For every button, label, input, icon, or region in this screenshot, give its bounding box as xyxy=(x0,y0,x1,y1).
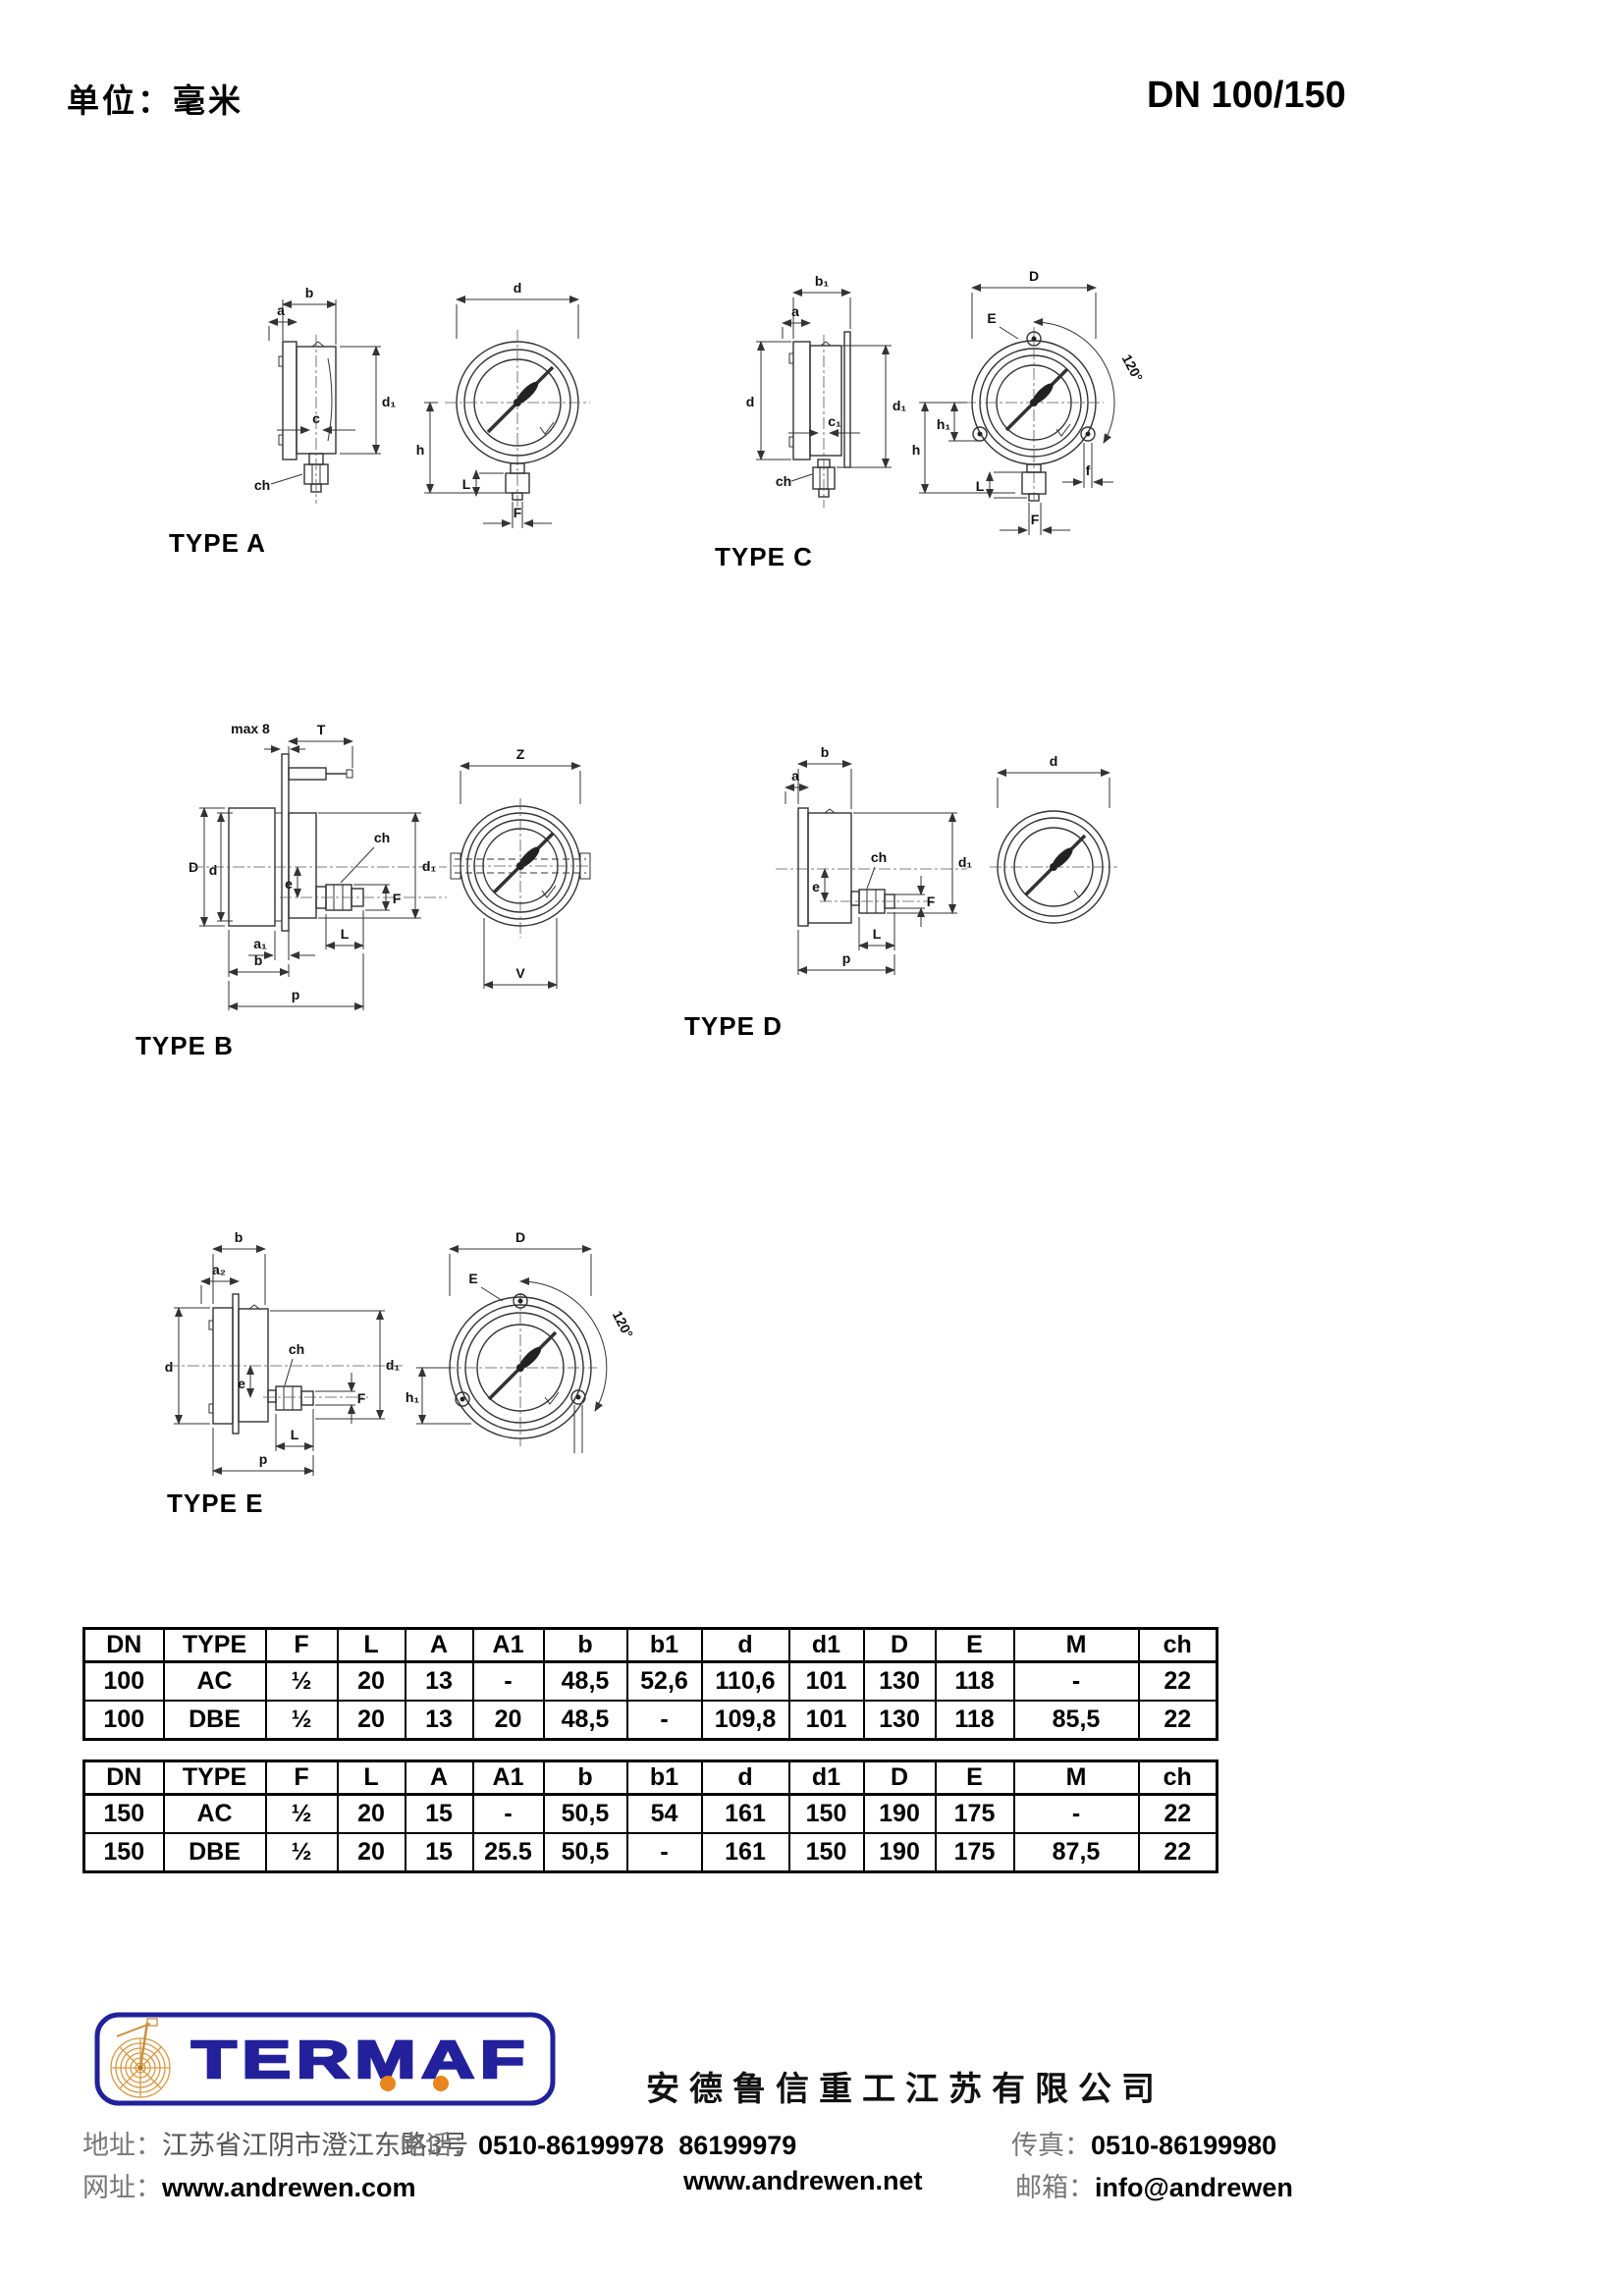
dim-label: D xyxy=(1029,268,1039,284)
table-header-cell: A1 xyxy=(473,1761,544,1795)
table-header-cell: d xyxy=(702,1629,789,1662)
email-value: info@andrewen xyxy=(1095,2173,1293,2202)
table-cell: 118 xyxy=(936,1662,1014,1702)
table-row: 150AC½2015-50,554161150190175-22 xyxy=(84,1795,1218,1834)
website-1: www.andrewen.com xyxy=(162,2173,416,2202)
dim-label: F xyxy=(393,891,402,906)
table-header-cell: DN xyxy=(84,1761,164,1795)
table-header-cell: d1 xyxy=(789,1761,864,1795)
dim-label: b xyxy=(235,1229,244,1245)
table-header-cell: d1 xyxy=(789,1629,864,1662)
dim-label: h₁ xyxy=(406,1389,420,1405)
table-cell: 101 xyxy=(789,1701,864,1740)
table-cell: - xyxy=(473,1662,544,1702)
dim-label: d xyxy=(165,1359,174,1375)
table-header-row: DNTYPEFLAA1bb1dd1DEMch xyxy=(84,1629,1218,1662)
table-cell: AC xyxy=(164,1795,266,1834)
dim-label: d xyxy=(209,862,218,878)
contact-line-2: 网址：www.andrewen.com www.andrewen.net 邮箱：… xyxy=(82,2166,1595,2208)
table-header-cell: M xyxy=(1014,1629,1139,1662)
dim-label: L xyxy=(976,478,985,494)
table-cell: 100 xyxy=(84,1701,164,1740)
dim-label: d₁ xyxy=(382,394,397,409)
table-cell: DBE xyxy=(164,1833,266,1872)
table-header-cell: D xyxy=(864,1761,936,1795)
dim-label: a xyxy=(791,768,799,784)
dim-label: b xyxy=(821,744,830,760)
table-cell: 20 xyxy=(338,1662,406,1702)
dim-label: ch xyxy=(374,830,390,845)
table-header-cell: DN xyxy=(84,1629,164,1662)
table-cell: - xyxy=(627,1701,702,1740)
dim-label: d₁ xyxy=(958,854,973,870)
table-header-cell: F xyxy=(266,1761,338,1795)
dim-label: E xyxy=(468,1271,477,1286)
table-cell: 22 xyxy=(1139,1833,1218,1872)
table-header-cell: b xyxy=(544,1629,627,1662)
dn-size-title: DN 100/150 xyxy=(1147,75,1346,117)
table-cell: 175 xyxy=(936,1795,1014,1834)
dim-label: f xyxy=(1086,462,1091,478)
type-d-caption: TYPE D xyxy=(684,1011,783,1042)
dim-label: b xyxy=(305,285,314,300)
table-cell: ½ xyxy=(266,1701,338,1740)
dim-label: b xyxy=(254,952,263,968)
table-cell: 13 xyxy=(406,1701,473,1740)
dim-label: d xyxy=(746,394,755,409)
table-cell: ½ xyxy=(266,1662,338,1702)
dim-label: F xyxy=(357,1390,366,1406)
table-cell: 100 xyxy=(84,1662,164,1702)
table-cell: 50,5 xyxy=(544,1795,627,1834)
table-cell: 22 xyxy=(1139,1701,1218,1740)
table-header-cell: E xyxy=(936,1761,1014,1795)
table-header-cell: ch xyxy=(1139,1761,1218,1795)
table-cell: 175 xyxy=(936,1833,1014,1872)
dim-label: max 8 xyxy=(231,721,270,736)
type-a-caption: TYPE A xyxy=(169,528,266,559)
table-cell: 22 xyxy=(1139,1795,1218,1834)
dim-label: ch xyxy=(289,1341,304,1357)
table-cell: 22 xyxy=(1139,1662,1218,1702)
table-header-cell: A1 xyxy=(473,1629,544,1662)
termaf-logo: TERMAF xyxy=(93,2011,559,2109)
type-e-drawing: b a₂ d ch e F d₁ L p D xyxy=(128,1213,677,1605)
table-cell: 15 xyxy=(406,1795,473,1834)
table-header-cell: F xyxy=(266,1629,338,1662)
table-header-cell: L xyxy=(338,1761,406,1795)
table-row: 100AC½2013-48,552,6110,6101130118-22 xyxy=(84,1662,1218,1702)
dim-label: d xyxy=(514,280,522,296)
type-c-caption: TYPE C xyxy=(715,542,813,572)
dim-label: e xyxy=(238,1376,245,1391)
unit-label: 单位：毫米 xyxy=(67,75,244,122)
dim-label: a xyxy=(791,303,799,319)
logo-wordmark: TERMAF xyxy=(191,2030,530,2089)
table-cell: 20 xyxy=(473,1701,544,1740)
dim-label: b₁ xyxy=(815,273,830,289)
dim-label: L xyxy=(291,1427,299,1442)
datasheet-page: 单位：毫米 DN 100/150 b a c d₁ ch xyxy=(0,0,1624,2274)
table-cell: 20 xyxy=(338,1795,406,1834)
table-cell: AC xyxy=(164,1662,266,1702)
type-b-caption: TYPE B xyxy=(135,1031,234,1061)
table-cell: - xyxy=(1014,1795,1139,1834)
table-cell: 150 xyxy=(84,1795,164,1834)
dim-label: V xyxy=(515,965,525,981)
table-header-cell: E xyxy=(936,1629,1014,1662)
table-cell: 190 xyxy=(864,1795,936,1834)
dim-label: ch xyxy=(254,477,270,493)
dim-label: d₁ xyxy=(386,1357,401,1373)
table-header-cell: ch xyxy=(1139,1629,1218,1662)
dim-label: e xyxy=(285,876,293,892)
email-label: 邮箱： xyxy=(1015,2173,1095,2202)
table-cell: 87,5 xyxy=(1014,1833,1139,1872)
website-2: www.andrewen.net xyxy=(683,2166,923,2195)
dim-label: F xyxy=(514,505,522,520)
dim-label: 120° xyxy=(1119,352,1147,384)
dim-label: a xyxy=(277,302,285,318)
fax-label: 传真： xyxy=(1011,2131,1091,2160)
table-cell: 85,5 xyxy=(1014,1701,1139,1740)
table-cell: 109,8 xyxy=(702,1701,789,1740)
dim-label: ch xyxy=(871,849,887,865)
dim-label: c₁ xyxy=(828,413,841,429)
table-header-cell: A xyxy=(406,1629,473,1662)
dim-label: ch xyxy=(776,473,791,489)
table-header-cell: A xyxy=(406,1761,473,1795)
table-cell: 54 xyxy=(627,1795,702,1834)
dimension-table-dn150: DNTYPEFLAA1bb1dd1DEMch150AC½2015-50,5541… xyxy=(82,1760,1218,1873)
dim-label: p xyxy=(842,950,851,966)
table-cell: 150 xyxy=(84,1833,164,1872)
dim-label: L xyxy=(341,926,350,942)
logo-orange-dot xyxy=(380,2076,396,2091)
fax-value: 0510-86199980 xyxy=(1091,2131,1276,2160)
dim-label: L xyxy=(462,476,471,492)
table-header-cell: b1 xyxy=(627,1629,702,1662)
type-a-drawing: b a c d₁ ch d h xyxy=(167,231,658,565)
table-cell: 48,5 xyxy=(544,1662,627,1702)
table-cell: 101 xyxy=(789,1662,864,1702)
table-cell: 150 xyxy=(789,1833,864,1872)
table-cell: 161 xyxy=(702,1795,789,1834)
table-header-cell: M xyxy=(1014,1761,1139,1795)
table-cell: 110,6 xyxy=(702,1662,789,1702)
type-d-drawing: b a ch e F d₁ L p d xyxy=(638,712,1149,1006)
table-header-cell: D xyxy=(864,1629,936,1662)
table-header-cell: L xyxy=(338,1629,406,1662)
type-e-caption: TYPE E xyxy=(167,1489,263,1519)
dim-label: p xyxy=(292,987,300,1002)
table-cell: 190 xyxy=(864,1833,936,1872)
table-cell: 15 xyxy=(406,1833,473,1872)
table-cell: 52,6 xyxy=(627,1662,702,1702)
dim-label: F xyxy=(1031,512,1040,527)
dim-label: d₁ xyxy=(422,858,437,874)
table-cell: 130 xyxy=(864,1701,936,1740)
logo-orange-dot xyxy=(433,2076,449,2091)
dim-label: d xyxy=(1050,753,1058,769)
table-cell: 48,5 xyxy=(544,1701,627,1740)
table-cell: 13 xyxy=(406,1662,473,1702)
dim-label: T xyxy=(317,722,326,737)
phone-label: 电话： xyxy=(399,2131,478,2160)
dim-label: F xyxy=(927,893,936,909)
table-cell: ½ xyxy=(266,1833,338,1872)
dim-label: a₁ xyxy=(253,936,267,951)
table-header-row: DNTYPEFLAA1bb1dd1DEMch xyxy=(84,1761,1218,1795)
table-cell: 130 xyxy=(864,1662,936,1702)
dim-label: d₁ xyxy=(893,398,907,413)
dim-label: D xyxy=(515,1229,525,1245)
contact-block: 地址：江苏省江阴市澄江东路3号 电话：0510-86199978 8619997… xyxy=(82,2124,1595,2208)
address-label: 地址： xyxy=(82,2131,162,2160)
table-cell: 50,5 xyxy=(544,1833,627,1872)
table-header-cell: b xyxy=(544,1761,627,1795)
dim-label: e xyxy=(812,879,820,894)
table-cell: - xyxy=(1014,1662,1139,1702)
dim-label: h xyxy=(912,442,921,458)
table-cell: DBE xyxy=(164,1701,266,1740)
table-cell: 161 xyxy=(702,1833,789,1872)
company-name: 安德鲁信重工江苏有限公司 xyxy=(646,2062,1164,2110)
table-row: 100DBE½20132048,5-109,810113011885,522 xyxy=(84,1701,1218,1740)
table-cell: 25.5 xyxy=(473,1833,544,1872)
dim-label: E xyxy=(987,310,996,326)
table-header-cell: d xyxy=(702,1761,789,1795)
website-label: 网址： xyxy=(82,2173,162,2202)
phone-value: 0510-86199978 86199979 xyxy=(478,2131,796,2160)
table-header-cell: b1 xyxy=(627,1761,702,1795)
contact-line-1: 地址：江苏省江阴市澄江东路3号 电话：0510-86199978 8619997… xyxy=(82,2124,1595,2166)
table-header-cell: TYPE xyxy=(164,1761,266,1795)
table-cell: 20 xyxy=(338,1833,406,1872)
dimension-table-dn100: DNTYPEFLAA1bb1dd1DEMch100AC½2013-48,552,… xyxy=(82,1627,1218,1741)
dim-label: L xyxy=(873,926,882,942)
table-cell: - xyxy=(473,1795,544,1834)
table-cell: - xyxy=(627,1833,702,1872)
dim-label: Z xyxy=(516,746,525,762)
table-cell: ½ xyxy=(266,1795,338,1834)
table-cell: 20 xyxy=(338,1701,406,1740)
dim-label: h₁ xyxy=(937,416,951,432)
dim-label: p xyxy=(259,1451,268,1467)
table-cell: 118 xyxy=(936,1701,1014,1740)
dim-label: a₂ xyxy=(212,1262,226,1277)
table-header-cell: TYPE xyxy=(164,1629,266,1662)
dim-label: 120° xyxy=(610,1308,636,1340)
table-cell: 150 xyxy=(789,1795,864,1834)
dim-label: h xyxy=(416,442,425,458)
dim-label: c xyxy=(312,410,320,426)
table-row: 150DBE½201525.550,5-16115019017587,522 xyxy=(84,1833,1218,1872)
